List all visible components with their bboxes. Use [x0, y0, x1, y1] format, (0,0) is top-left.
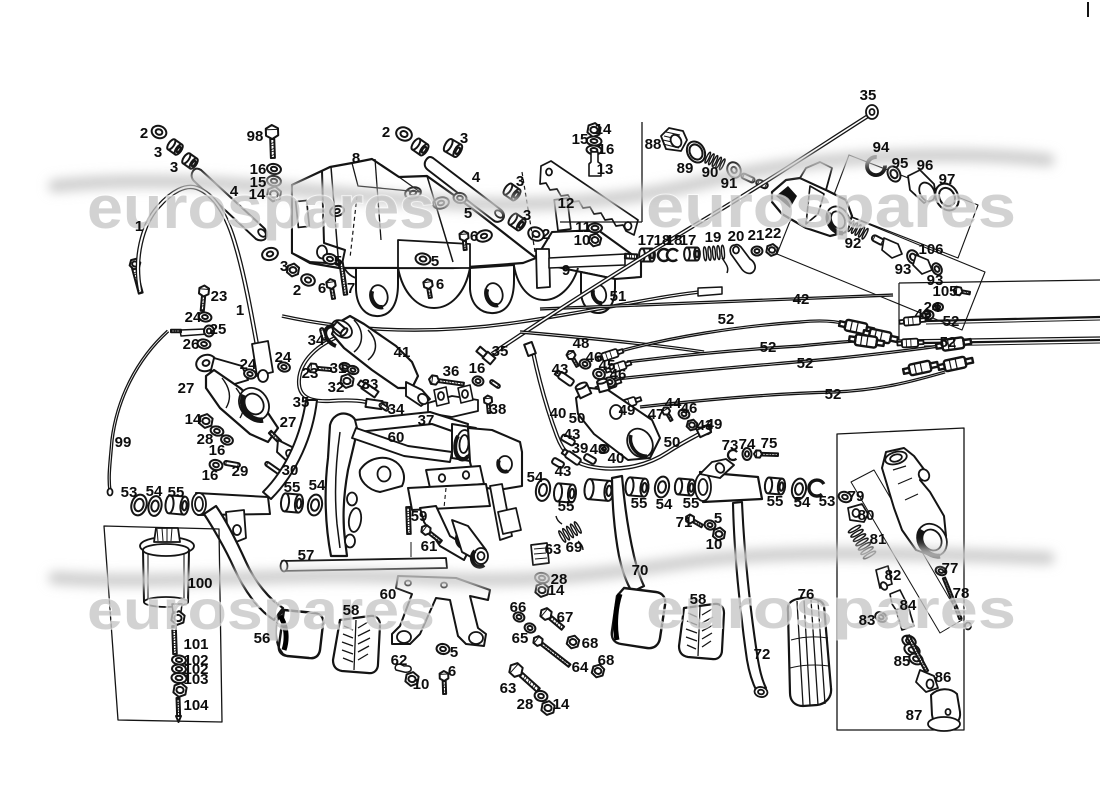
- svg-text:46: 46: [681, 400, 698, 417]
- svg-text:10: 10: [574, 232, 591, 249]
- svg-text:79: 79: [848, 488, 865, 505]
- svg-text:5: 5: [334, 253, 342, 270]
- svg-text:eurospares: eurospares: [646, 173, 1016, 240]
- svg-text:21: 21: [748, 227, 765, 244]
- svg-text:53: 53: [121, 484, 138, 501]
- svg-text:34: 34: [308, 332, 325, 349]
- svg-text:38: 38: [490, 401, 507, 418]
- svg-text:50: 50: [664, 434, 681, 451]
- svg-text:72: 72: [754, 646, 771, 663]
- svg-text:19: 19: [705, 229, 722, 246]
- svg-text:104: 104: [183, 697, 209, 714]
- svg-text:88: 88: [645, 136, 662, 153]
- svg-text:2: 2: [293, 282, 301, 299]
- svg-text:35: 35: [293, 394, 310, 411]
- svg-text:41: 41: [394, 344, 411, 361]
- svg-text:56: 56: [254, 630, 271, 647]
- svg-text:7: 7: [347, 280, 355, 297]
- svg-text:54: 54: [794, 494, 811, 511]
- svg-text:53: 53: [819, 493, 836, 510]
- svg-text:14: 14: [249, 186, 266, 203]
- svg-text:99: 99: [115, 434, 132, 451]
- svg-text:52: 52: [797, 355, 814, 372]
- svg-text:89: 89: [677, 160, 694, 177]
- svg-text:58: 58: [343, 602, 360, 619]
- svg-text:92: 92: [845, 235, 862, 252]
- svg-text:24: 24: [185, 309, 202, 326]
- svg-text:66: 66: [510, 599, 527, 616]
- svg-text:97: 97: [939, 171, 956, 188]
- svg-text:31: 31: [330, 360, 347, 377]
- svg-text:64: 64: [572, 659, 589, 676]
- svg-text:60: 60: [380, 586, 397, 603]
- svg-text:16: 16: [598, 141, 615, 158]
- svg-text:54: 54: [309, 477, 326, 494]
- svg-text:76: 76: [798, 586, 815, 603]
- svg-text:40: 40: [550, 405, 567, 422]
- svg-text:93: 93: [895, 261, 912, 278]
- svg-text:10: 10: [706, 536, 723, 553]
- svg-text:22: 22: [765, 225, 782, 242]
- svg-text:15: 15: [572, 131, 589, 148]
- svg-text:39: 39: [572, 440, 589, 457]
- svg-text:24: 24: [275, 349, 292, 366]
- svg-text:40: 40: [608, 450, 625, 467]
- svg-text:13: 13: [597, 161, 614, 178]
- svg-text:5: 5: [431, 253, 439, 270]
- svg-text:55: 55: [168, 484, 185, 501]
- svg-text:52: 52: [760, 339, 777, 356]
- svg-text:96: 96: [917, 157, 934, 174]
- svg-text:106: 106: [918, 241, 943, 258]
- svg-text:55: 55: [767, 493, 784, 510]
- svg-text:23: 23: [211, 288, 228, 305]
- svg-text:63: 63: [545, 541, 562, 558]
- svg-text:80: 80: [858, 507, 875, 524]
- svg-text:20: 20: [728, 228, 745, 245]
- svg-text:67: 67: [557, 609, 574, 626]
- svg-text:91: 91: [721, 175, 738, 192]
- svg-text:25: 25: [210, 321, 227, 338]
- svg-text:43: 43: [555, 463, 572, 480]
- svg-text:32: 32: [328, 379, 345, 396]
- svg-text:94: 94: [873, 139, 890, 156]
- svg-text:4: 4: [472, 169, 481, 186]
- svg-text:5: 5: [450, 644, 458, 661]
- svg-text:44: 44: [665, 395, 682, 412]
- svg-text:103: 103: [183, 671, 208, 688]
- svg-text:82: 82: [885, 567, 902, 584]
- svg-text:71: 71: [676, 514, 693, 531]
- svg-text:68: 68: [582, 635, 599, 652]
- svg-text:27: 27: [178, 380, 195, 397]
- svg-text:2: 2: [382, 124, 390, 141]
- svg-text:81: 81: [870, 531, 887, 548]
- svg-text:2: 2: [140, 125, 148, 142]
- svg-text:69: 69: [566, 539, 583, 556]
- svg-text:73: 73: [722, 437, 739, 454]
- svg-text:43: 43: [552, 361, 569, 378]
- svg-text:54: 54: [146, 483, 163, 500]
- svg-text:17: 17: [638, 232, 655, 249]
- svg-text:6: 6: [318, 280, 326, 297]
- svg-text:6: 6: [448, 663, 456, 680]
- svg-text:43: 43: [590, 441, 607, 458]
- svg-text:6: 6: [470, 228, 478, 245]
- svg-text:1: 1: [135, 218, 143, 235]
- svg-text:98: 98: [247, 128, 264, 145]
- svg-text:35: 35: [492, 343, 509, 360]
- svg-text:50: 50: [569, 410, 586, 427]
- svg-text:101: 101: [183, 636, 208, 653]
- svg-text:35: 35: [860, 87, 877, 104]
- svg-text:16: 16: [202, 467, 219, 484]
- svg-text:57: 57: [298, 547, 315, 564]
- svg-text:100: 100: [187, 575, 212, 592]
- svg-text:10: 10: [413, 676, 430, 693]
- svg-text:3: 3: [170, 159, 178, 176]
- svg-text:29: 29: [232, 463, 249, 480]
- svg-text:54: 54: [527, 469, 544, 486]
- svg-text:3: 3: [154, 144, 162, 161]
- svg-text:58: 58: [690, 591, 707, 608]
- svg-text:55: 55: [631, 495, 648, 512]
- svg-text:5: 5: [464, 205, 472, 222]
- svg-text:12: 12: [558, 195, 575, 212]
- svg-text:68: 68: [598, 652, 615, 669]
- svg-text:49: 49: [915, 306, 932, 323]
- svg-text:27: 27: [280, 414, 297, 431]
- svg-text:90: 90: [702, 164, 719, 181]
- svg-text:34: 34: [388, 401, 405, 418]
- svg-text:14: 14: [553, 696, 570, 713]
- svg-text:86: 86: [935, 669, 952, 686]
- svg-text:75: 75: [761, 435, 778, 452]
- svg-text:23: 23: [302, 365, 319, 382]
- svg-text:49: 49: [619, 402, 636, 419]
- svg-text:26: 26: [183, 336, 200, 353]
- svg-text:85: 85: [894, 653, 911, 670]
- svg-text:84: 84: [900, 597, 917, 614]
- svg-text:52: 52: [825, 386, 842, 403]
- svg-text:3: 3: [516, 173, 524, 190]
- svg-text:52: 52: [940, 334, 957, 351]
- svg-text:36: 36: [443, 363, 460, 380]
- svg-text:60: 60: [388, 429, 405, 446]
- svg-text:24: 24: [240, 356, 257, 373]
- svg-text:77: 77: [942, 560, 959, 577]
- svg-text:59: 59: [411, 508, 428, 525]
- svg-text:95: 95: [892, 155, 909, 172]
- svg-text:8: 8: [352, 150, 360, 167]
- svg-text:14: 14: [595, 121, 612, 138]
- svg-text:46: 46: [610, 366, 627, 383]
- svg-text:78: 78: [953, 585, 970, 602]
- svg-text:1: 1: [236, 302, 244, 319]
- svg-text:16: 16: [209, 442, 226, 459]
- svg-text:62: 62: [391, 652, 408, 669]
- svg-text:6: 6: [436, 276, 444, 293]
- svg-text:14: 14: [548, 582, 565, 599]
- svg-text:52: 52: [718, 311, 735, 328]
- svg-text:63: 63: [500, 680, 517, 697]
- svg-text:5: 5: [714, 510, 722, 527]
- svg-text:28: 28: [517, 696, 534, 713]
- svg-text:9: 9: [562, 262, 570, 279]
- svg-text:43: 43: [697, 417, 714, 434]
- svg-text:70: 70: [632, 562, 649, 579]
- svg-text:55: 55: [284, 479, 301, 496]
- svg-text:74: 74: [739, 436, 756, 453]
- svg-text:54: 54: [656, 496, 673, 513]
- svg-text:3: 3: [460, 130, 468, 147]
- svg-text:47: 47: [648, 406, 665, 423]
- svg-text:33: 33: [362, 376, 379, 393]
- svg-text:14: 14: [185, 411, 202, 428]
- svg-text:37: 37: [418, 412, 435, 429]
- svg-text:16: 16: [469, 360, 486, 377]
- svg-text:3: 3: [523, 207, 531, 224]
- svg-text:42: 42: [793, 291, 810, 308]
- svg-text:2: 2: [542, 226, 550, 243]
- svg-text:52: 52: [943, 313, 960, 330]
- svg-text:61: 61: [421, 538, 438, 555]
- svg-text:87: 87: [906, 707, 923, 724]
- svg-text:17: 17: [680, 232, 697, 249]
- svg-text:55: 55: [558, 498, 575, 515]
- svg-text:4: 4: [230, 183, 239, 200]
- svg-text:3: 3: [280, 258, 288, 275]
- svg-text:30: 30: [282, 462, 299, 479]
- svg-text:65: 65: [512, 630, 529, 647]
- svg-text:51: 51: [610, 288, 627, 305]
- svg-text:55: 55: [683, 495, 700, 512]
- svg-text:83: 83: [859, 612, 876, 629]
- svg-text:105: 105: [932, 283, 957, 300]
